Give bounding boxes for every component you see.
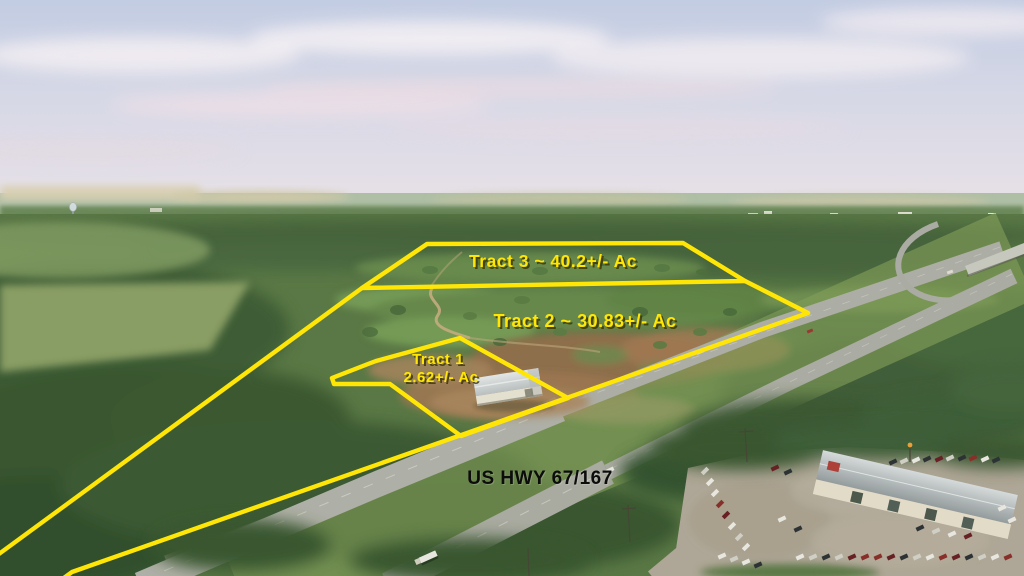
- tract1-label-name: Tract 1: [412, 351, 464, 368]
- tract1-label-acres: 2.62+/- Ac: [404, 369, 479, 386]
- aerial-photo-canvas: Tract 3 ~ 40.2+/- Ac Tract 2 ~ 30.83+/- …: [0, 0, 1024, 576]
- aerial-tract-photo: Tract 3 ~ 40.2+/- Ac Tract 2 ~ 30.83+/- …: [0, 0, 1024, 576]
- highway-label: US HWY 67/167: [467, 468, 613, 489]
- tract3-label: Tract 3 ~ 40.2+/- Ac: [469, 251, 637, 271]
- sky: [0, 0, 1024, 215]
- tract2-label: Tract 2 ~ 30.83+/- Ac: [494, 311, 677, 331]
